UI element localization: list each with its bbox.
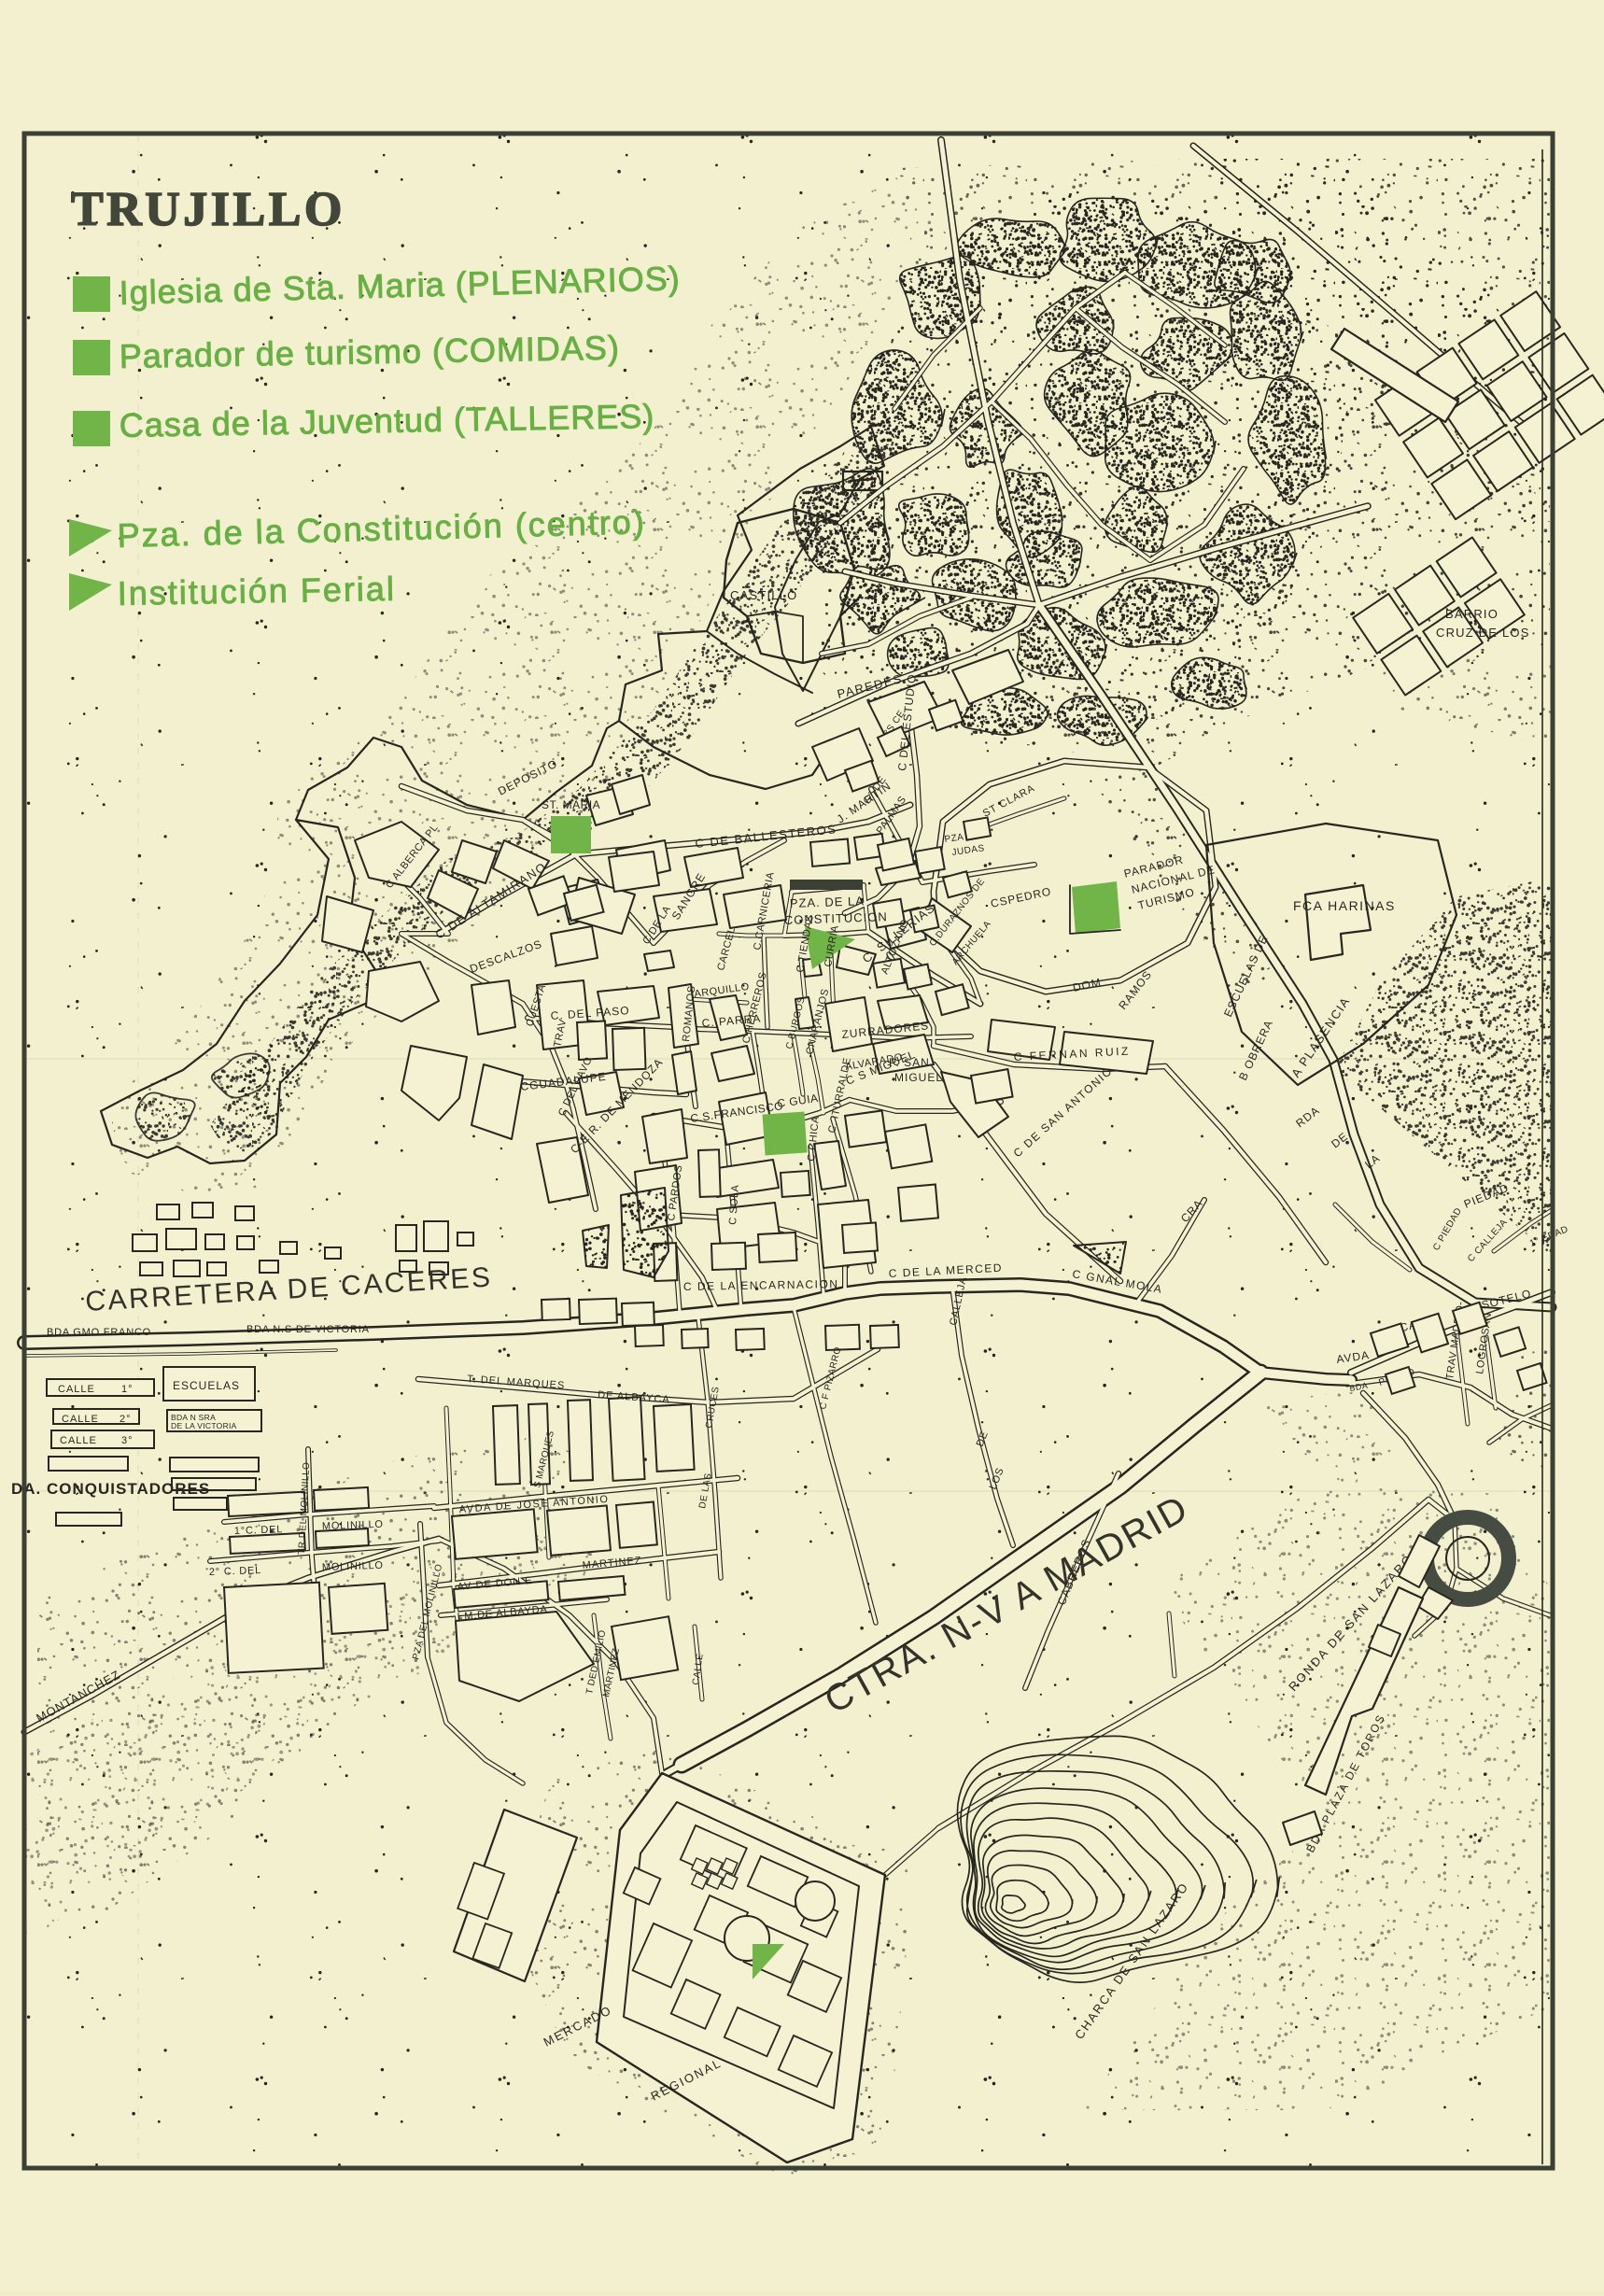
svg-text:1°: 1° [121, 1384, 134, 1395]
svg-text:BDA GMO FRANCO: BDA GMO FRANCO [47, 1327, 151, 1338]
svg-text:PZA. DE LA: PZA. DE LA [790, 894, 865, 910]
svg-text:DE LA VICTORIA: DE LA VICTORIA [171, 1421, 237, 1430]
svg-text:ESCUELAS: ESCUELAS [173, 1379, 240, 1392]
svg-text:FCA HARINAS: FCA HARINAS [1293, 898, 1396, 913]
svg-text:BDA N.S DE VICTORIA: BDA N.S DE VICTORIA [246, 1324, 370, 1335]
svg-text:CALLE: CALLE [60, 1435, 97, 1446]
svg-text:DA. CONQUISTADORES: DA. CONQUISTADORES [11, 1480, 210, 1498]
svg-text:C DE LA ENCARNACION: C DE LA ENCARNACION [683, 1277, 839, 1293]
svg-text:1°C. DEL: 1°C. DEL [234, 1524, 284, 1537]
svg-text:MIGUEL: MIGUEL [894, 1071, 943, 1084]
svg-text:MOLINILLO: MOLINILLO [322, 1560, 384, 1573]
svg-text:TRUJILLO: TRUJILLO [71, 183, 345, 236]
svg-text:2° C. DEL: 2° C. DEL [209, 1565, 262, 1578]
svg-text:Institución Ferial: Institución Ferial [117, 570, 396, 613]
svg-text:ST. MARIA: ST. MARIA [542, 798, 600, 811]
svg-text:CASTILLO: CASTILLO [730, 588, 797, 602]
svg-text:CALLE: CALLE [58, 1384, 95, 1395]
svg-text:MOLINILLO: MOLINILLO [322, 1519, 384, 1532]
svg-text:3°: 3° [121, 1435, 134, 1446]
svg-text:CRUZ DE LOS: CRUZ DE LOS [1436, 626, 1530, 640]
svg-text:CALLE: CALLE [62, 1414, 99, 1425]
svg-text:BARRIO: BARRIO [1445, 607, 1498, 621]
svg-text:2°: 2° [120, 1414, 132, 1425]
